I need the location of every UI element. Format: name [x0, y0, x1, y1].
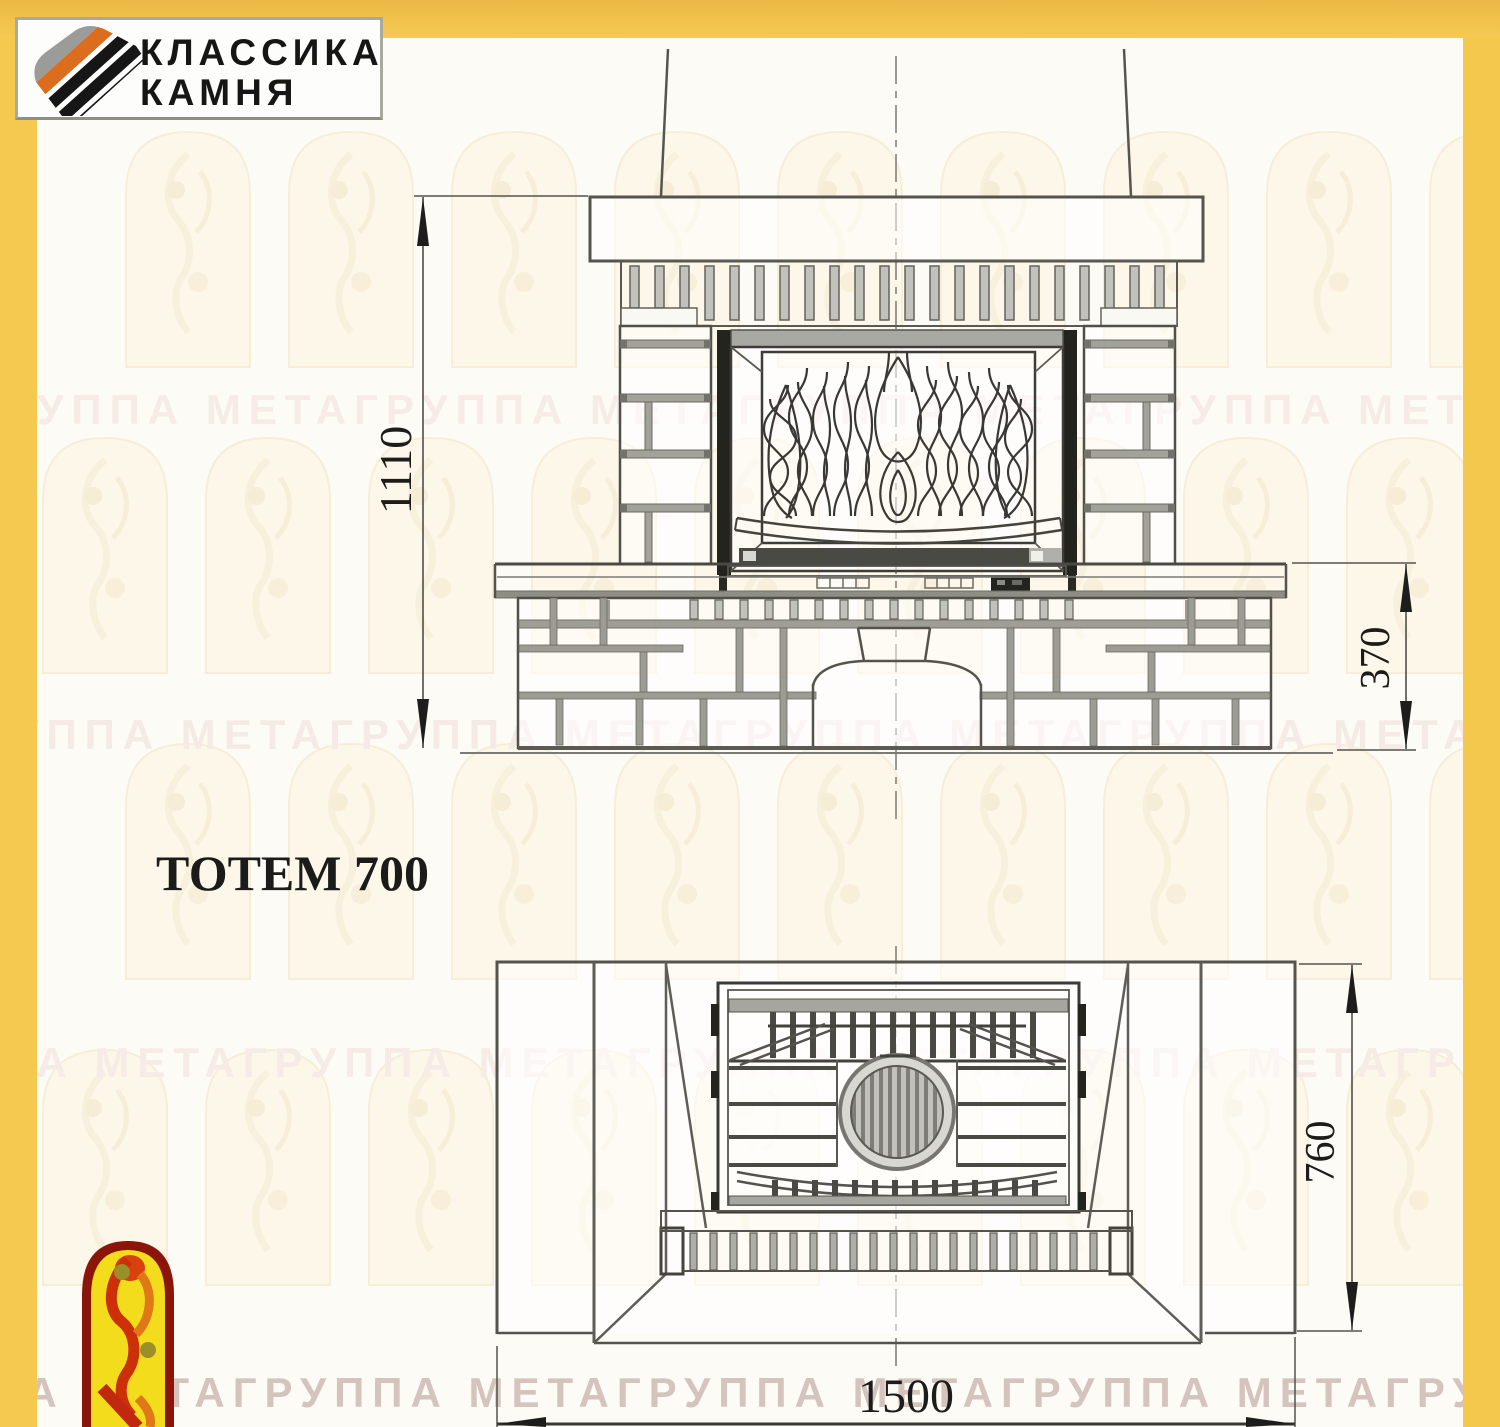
svg-text:ТОТЕМ 700: ТОТЕМ 700	[156, 845, 429, 901]
svg-text:1500: 1500	[858, 1370, 954, 1423]
svg-text:370: 370	[1353, 627, 1399, 690]
svg-text:1110: 1110	[370, 426, 421, 515]
svg-text:760: 760	[1298, 1121, 1344, 1184]
